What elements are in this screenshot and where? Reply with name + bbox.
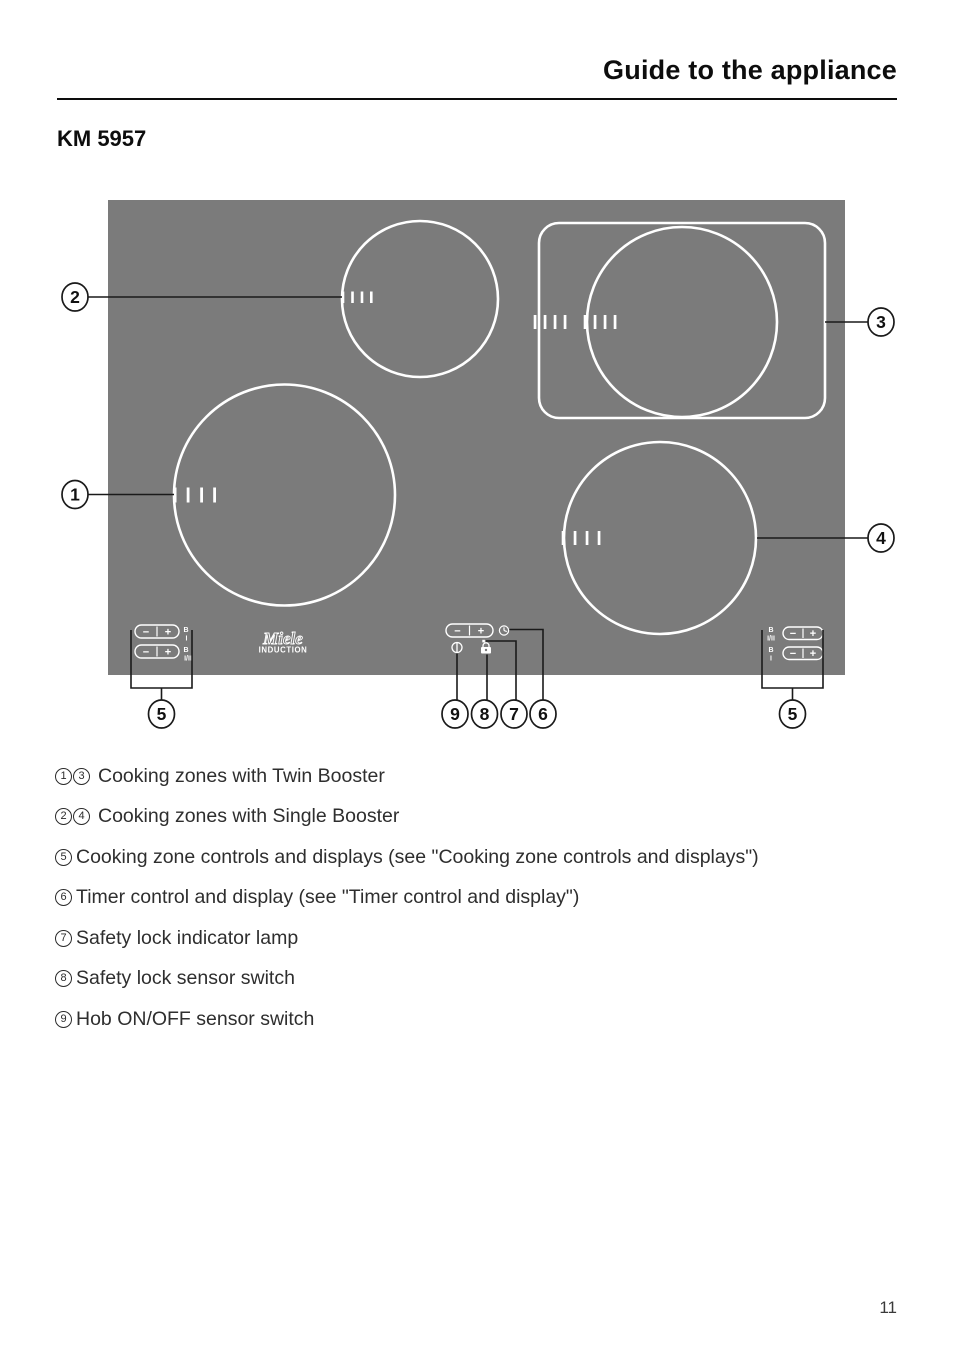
legend-ref: 2 — [55, 808, 72, 825]
svg-text:5: 5 — [788, 704, 798, 724]
legend-text: Cooking zone controls and displays (see … — [76, 846, 759, 869]
booster-label: B — [768, 627, 773, 634]
legend-ref: 6 — [55, 889, 72, 906]
callout-7: 7 — [501, 700, 527, 728]
minus-label: − — [143, 647, 149, 659]
booster-label: B — [768, 647, 773, 654]
legend-item-single-booster: 2 4 Cooking zones with Single Booster — [55, 804, 915, 830]
legend-ref: 3 — [73, 768, 90, 785]
minus-label: − — [454, 626, 460, 638]
plus-label: + — [478, 626, 484, 638]
booster-label: B — [183, 627, 188, 634]
legend-item-zone-controls: 5 Cooking zone controls and displays (se… — [55, 844, 915, 870]
hob-surface — [108, 200, 845, 675]
legend-item-on-off: 9 Hob ON/OFF sensor switch — [55, 1006, 915, 1032]
svg-text:4: 4 — [876, 528, 886, 548]
legend-text: Cooking zones with Single Booster — [98, 805, 399, 828]
svg-text:1: 1 — [70, 485, 80, 505]
svg-text:9: 9 — [450, 704, 460, 724]
level-label: I/II — [767, 636, 775, 643]
booster-label: B — [183, 647, 188, 654]
svg-text:2: 2 — [70, 287, 80, 307]
callout-5-right: 5 — [780, 700, 806, 728]
legend-ref: 4 — [73, 808, 90, 825]
legend-text: Safety lock sensor switch — [76, 967, 295, 990]
callout-5-left: 5 — [149, 700, 175, 728]
brand-logo: Miele INDUCTION — [259, 629, 308, 655]
lock-indicator-lamp — [482, 640, 485, 643]
callout-8: 8 — [472, 700, 498, 728]
legend-text: Safety lock indicator lamp — [76, 927, 298, 950]
callout-3: 3 — [868, 308, 894, 336]
svg-text:8: 8 — [480, 704, 490, 724]
plus-label: + — [165, 627, 171, 639]
callout-4: 4 — [868, 524, 894, 552]
svg-text:7: 7 — [509, 704, 519, 724]
legend-ref: 7 — [55, 930, 72, 947]
legend-item-timer: 6 Timer control and display (see "Timer … — [55, 885, 915, 911]
callout-2: 2 — [62, 283, 88, 311]
plus-label: + — [810, 628, 816, 640]
svg-text:6: 6 — [538, 704, 548, 724]
manual-page: Guide to the appliance KM 5957 — [0, 0, 954, 1352]
hob-diagram: − + − + B I B I/II Miele INDUCTION − + — [0, 0, 954, 745]
legend-item-lock-switch: 8 Safety lock sensor switch — [55, 966, 915, 992]
level-label: I — [186, 636, 188, 643]
legend-item-lock-lamp: 7 Safety lock indicator lamp — [55, 925, 915, 951]
callout-6: 6 — [530, 700, 556, 728]
level-label: I/II — [184, 656, 192, 663]
legend-item-twin-booster: 1 3 Cooking zones with Twin Booster — [55, 763, 915, 789]
callout-9: 9 — [442, 700, 468, 728]
plus-label: + — [165, 647, 171, 659]
brand-sub: INDUCTION — [259, 646, 308, 655]
minus-label: − — [790, 648, 796, 660]
callout-1: 1 — [62, 481, 88, 509]
legend-text: Hob ON/OFF sensor switch — [76, 1008, 314, 1031]
legend-ref: 5 — [55, 849, 72, 866]
svg-text:3: 3 — [876, 312, 886, 332]
legend-text: Cooking zones with Twin Booster — [98, 765, 385, 788]
minus-label: − — [790, 628, 796, 640]
minus-label: − — [143, 627, 149, 639]
svg-text:5: 5 — [157, 704, 167, 724]
legend-text: Timer control and display (see "Timer co… — [76, 886, 579, 909]
level-label: I — [770, 656, 772, 663]
page-number: 11 — [57, 1298, 897, 1318]
plus-label: + — [810, 648, 816, 660]
legend-ref: 8 — [55, 970, 72, 987]
legend-ref: 9 — [55, 1011, 72, 1028]
legend-ref: 1 — [55, 768, 72, 785]
legend: 1 3 Cooking zones with Twin Booster 2 4 … — [55, 763, 915, 1047]
